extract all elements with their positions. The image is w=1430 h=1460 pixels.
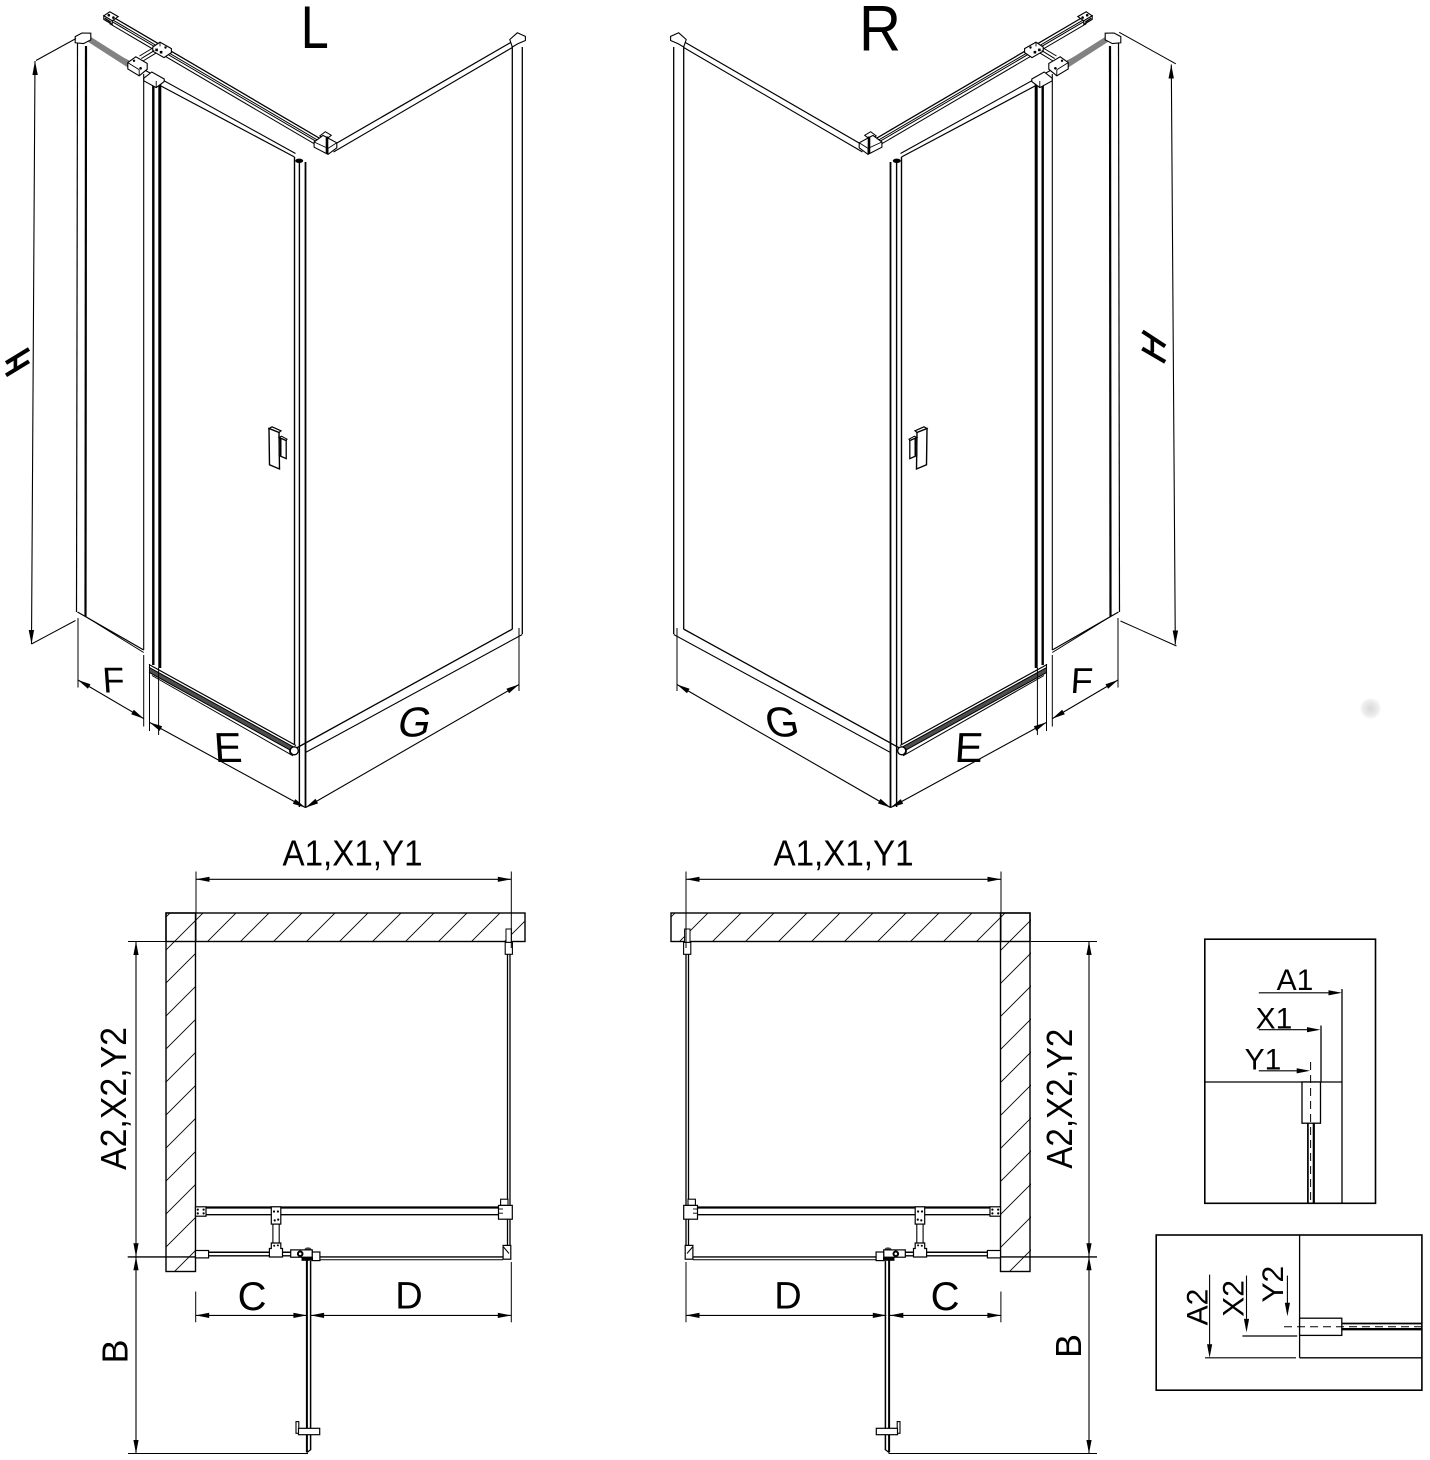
svg-text:X1: X1 bbox=[1256, 1002, 1293, 1035]
svg-text:A2,X2,Y2: A2,X2,Y2 bbox=[1039, 1029, 1080, 1169]
svg-text:E: E bbox=[212, 724, 243, 771]
svg-text:A1,X1,Y1: A1,X1,Y1 bbox=[283, 832, 423, 873]
svg-text:D: D bbox=[395, 1276, 422, 1318]
svg-text:C: C bbox=[238, 1275, 267, 1319]
svg-text:B: B bbox=[1048, 1334, 1089, 1358]
svg-text:B: B bbox=[95, 1339, 136, 1363]
svg-text:E: E bbox=[953, 724, 984, 771]
svg-text:Y2: Y2 bbox=[1257, 1266, 1290, 1303]
svg-text:A2: A2 bbox=[1181, 1289, 1214, 1326]
svg-text:F: F bbox=[101, 660, 126, 701]
svg-text:A2,X2,Y2: A2,X2,Y2 bbox=[93, 1027, 134, 1170]
svg-text:F: F bbox=[1069, 660, 1094, 701]
svg-text:Y1: Y1 bbox=[1245, 1044, 1282, 1077]
svg-text:D: D bbox=[774, 1276, 801, 1318]
svg-text:X2: X2 bbox=[1218, 1280, 1251, 1317]
svg-text:C: C bbox=[931, 1275, 960, 1319]
svg-text:A1,X1,Y1: A1,X1,Y1 bbox=[774, 832, 914, 873]
svg-text:L: L bbox=[301, 0, 329, 61]
svg-text:A1: A1 bbox=[1277, 964, 1314, 997]
svg-text:R: R bbox=[859, 0, 901, 65]
